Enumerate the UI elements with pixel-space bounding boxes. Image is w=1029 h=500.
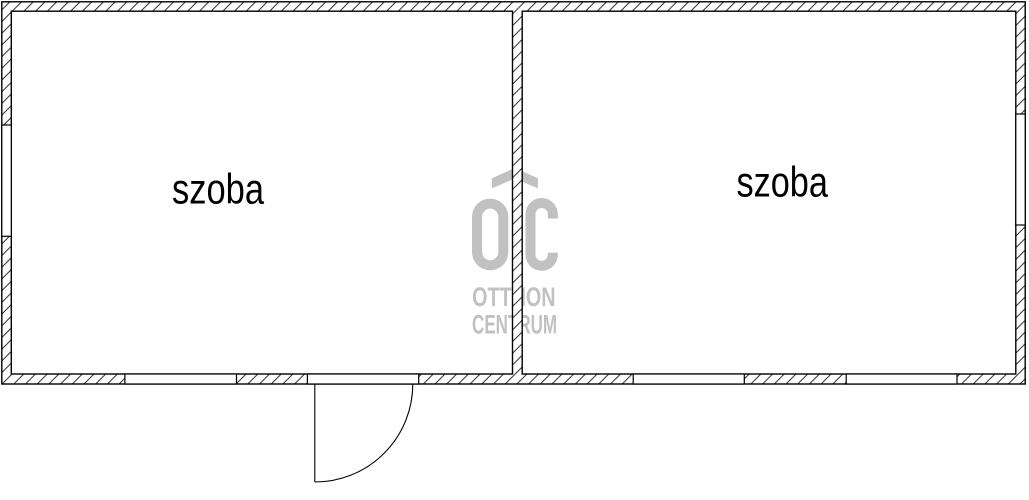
- svg-text:szoba: szoba: [172, 166, 264, 214]
- svg-text:szoba: szoba: [736, 159, 828, 207]
